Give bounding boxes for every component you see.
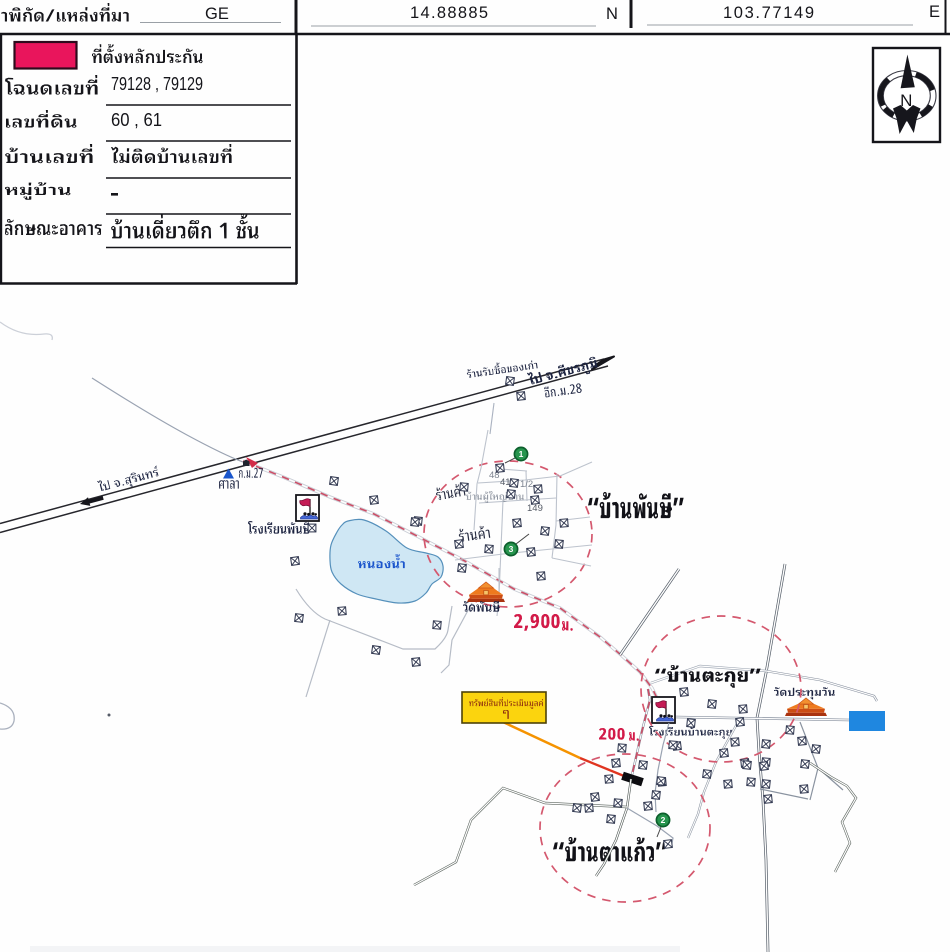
svg-text:1/2: 1/2 xyxy=(520,479,533,490)
svg-text:149: 149 xyxy=(527,503,543,514)
svg-text:60 , 61: 60 , 61 xyxy=(111,109,162,130)
svg-text:1: 1 xyxy=(519,449,524,459)
svg-text:41: 41 xyxy=(500,477,511,488)
svg-text:3: 3 xyxy=(509,544,514,554)
svg-text:N: N xyxy=(900,91,912,110)
svg-text:79128 , 79129: 79128 , 79129 xyxy=(111,73,203,94)
svg-text:103.77149: 103.77149 xyxy=(723,4,814,22)
svg-text:14.88885: 14.88885 xyxy=(410,4,488,22)
svg-text:N: N xyxy=(606,5,618,23)
svg-text:2: 2 xyxy=(661,815,666,825)
svg-text:E: E xyxy=(929,3,940,21)
svg-text:GE: GE xyxy=(205,5,229,23)
